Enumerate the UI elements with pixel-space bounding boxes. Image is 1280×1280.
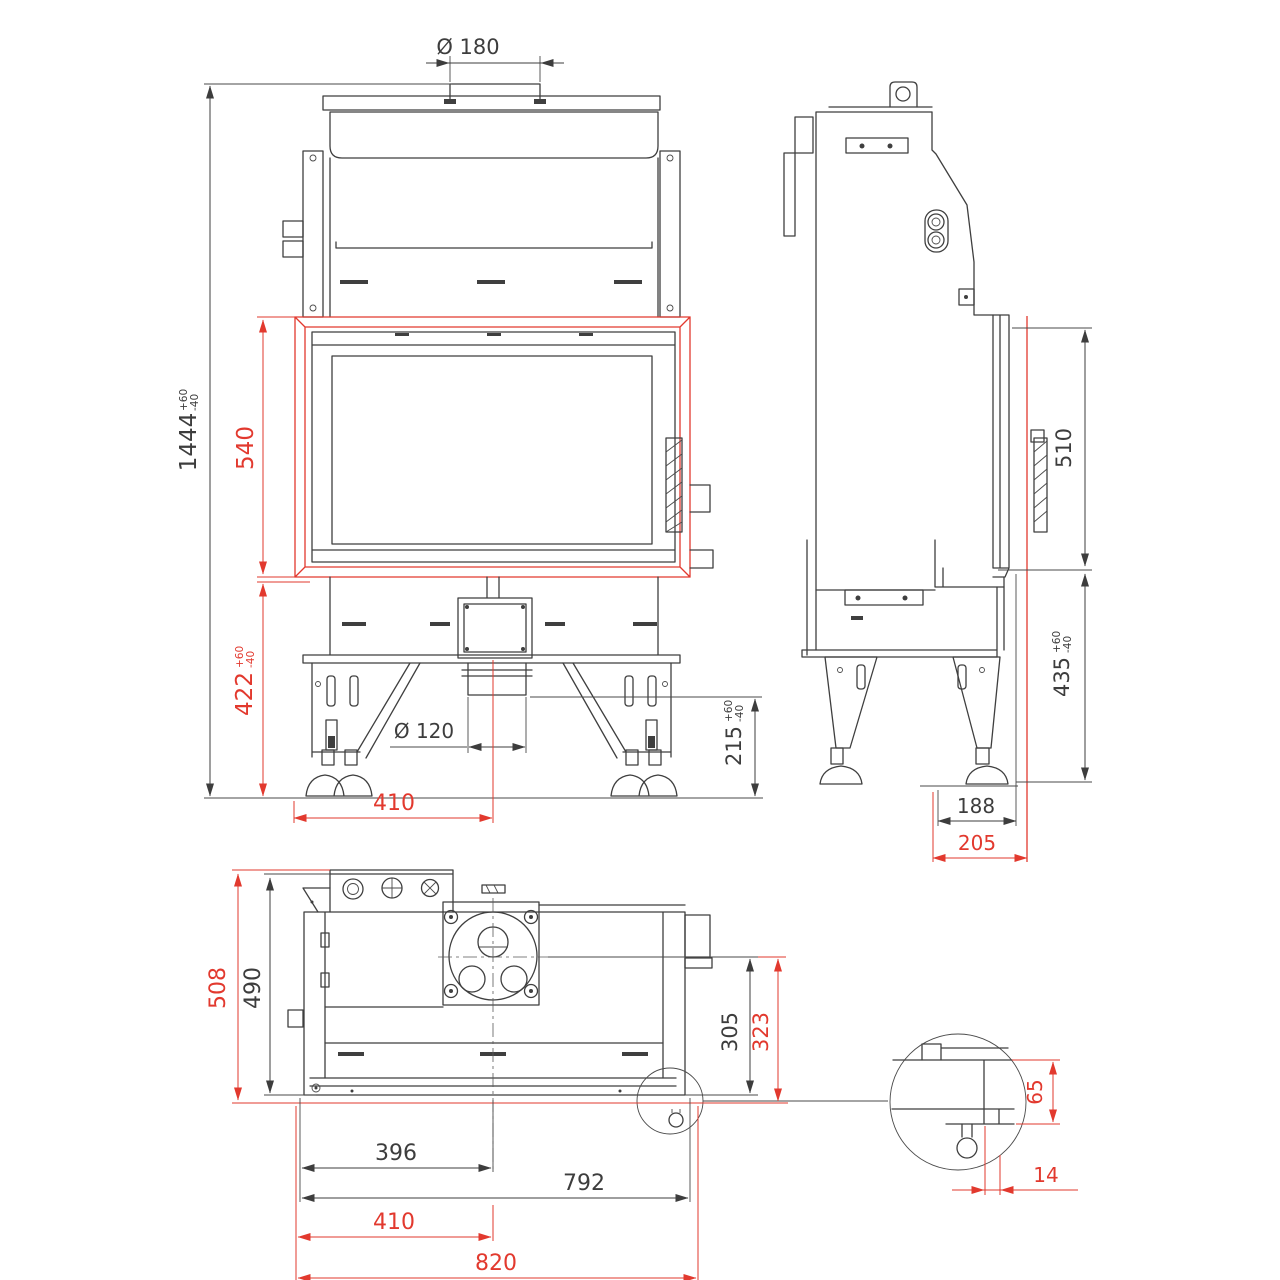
dim-plan-body-depth-value: 490: [241, 967, 266, 1009]
dim-overall-height: 1444 +60 -40: [176, 84, 452, 796]
technical-drawing-page: 1444 +60 -40 Ø 180 540 422 +60 -: [0, 0, 1280, 1280]
dim-plan-axis-to-front-value: 305: [718, 1012, 742, 1052]
dim-side-plinth-height-tol-minus: -40: [1062, 636, 1074, 653]
dim-plan-half-width: 396: [300, 1098, 690, 1202]
dim-plan-axis-offset: 410: [296, 1106, 493, 1280]
dim-plan-overall-width: 820: [298, 1106, 698, 1280]
front-glass: [332, 356, 652, 544]
dim-plinth-height-value: 422: [232, 672, 258, 716]
side-lower-casing: [802, 540, 1004, 657]
dim-side-overall-depth-value: 205: [958, 831, 996, 855]
dim-plan-body-width: 792: [302, 1171, 688, 1198]
detail-view: 65 14: [890, 1034, 1078, 1195]
dim-detail-height: 65: [1012, 1060, 1060, 1124]
dim-plan-axis-to-front-outer-value: 323: [749, 1012, 773, 1052]
dim-flue-diameter: Ø 180: [426, 35, 564, 82]
dim-plan-axis-to-front-outer: 323: [749, 957, 786, 1101]
front-lower-casing: [303, 577, 680, 695]
detail-circle: [890, 1034, 1026, 1170]
front-view: 1444 +60 -40 Ø 180 540 422 +60 -: [176, 35, 763, 823]
dim-plinth-height: 422 +60 -40: [232, 582, 310, 796]
dim-side-plinth-height-value: 435: [1050, 657, 1074, 697]
front-right-leg: [563, 663, 677, 796]
dim-flue-diameter-value: Ø 180: [436, 35, 499, 59]
dim-door-height: 540: [233, 317, 297, 577]
dim-plinth-height-tol-minus: -40: [245, 651, 257, 668]
plan-body-outline: [288, 870, 712, 1095]
flange-centerlines: [438, 898, 556, 1172]
plan-flue-flange: [438, 885, 556, 1172]
dim-plan-overall-depth: 508: [206, 870, 788, 1103]
dim-side-glass-height-value: 510: [1052, 428, 1076, 468]
dim-inlet-axis-offset-value: 410: [373, 791, 415, 816]
dim-plan-overall-depth-value: 508: [206, 967, 231, 1009]
front-latch-brackets: [690, 485, 713, 568]
dim-door-height-value: 540: [233, 426, 259, 470]
fireplace-dimension-drawing: 1444 +60 -40 Ø 180 540 422 +60 -: [0, 0, 1280, 1280]
dim-inlet-diameter-value: Ø 120: [394, 719, 454, 743]
dim-plan-overall-width-value: 820: [475, 1251, 517, 1276]
side-view: 510 435 +60 -40 188 205: [784, 82, 1092, 862]
front-body-outline: [283, 84, 680, 317]
dim-plan-axis-to-front: 305: [548, 957, 758, 1095]
dim-inlet-height-value: 215: [722, 726, 746, 766]
dim-inlet-height-tol-minus: -40: [734, 705, 746, 722]
dim-detail-offset-value: 14: [1033, 1163, 1058, 1187]
dim-detail-height-value: 65: [1023, 1079, 1047, 1104]
dim-inlet-diameter: Ø 120: [390, 697, 526, 753]
side-legs: [820, 657, 1018, 786]
dim-overall-height-tol-minus: -40: [189, 394, 201, 411]
plan-view: 508 490 305 323 396: [206, 870, 888, 1280]
dim-overall-height-value: 1444: [176, 413, 202, 472]
dim-plan-body-width-value: 792: [563, 1171, 605, 1196]
dim-plan-body-depth: 490: [241, 874, 330, 1095]
front-door-frame: [295, 317, 713, 577]
detail-geometry: [892, 1044, 1014, 1158]
side-door-profile: [993, 315, 1047, 862]
side-body-outline: [784, 82, 993, 650]
dim-plan-axis-offset-value: 410: [373, 1210, 415, 1235]
front-air-inlet-tube: [462, 663, 532, 695]
dim-side-base-depth-value: 188: [957, 794, 995, 818]
dim-side-glass-height: 510: [998, 328, 1092, 570]
side-door-handle: [1031, 430, 1047, 532]
dim-detail-offset: 14: [952, 1126, 1078, 1195]
dim-plan-half-width-value: 396: [375, 1141, 417, 1166]
